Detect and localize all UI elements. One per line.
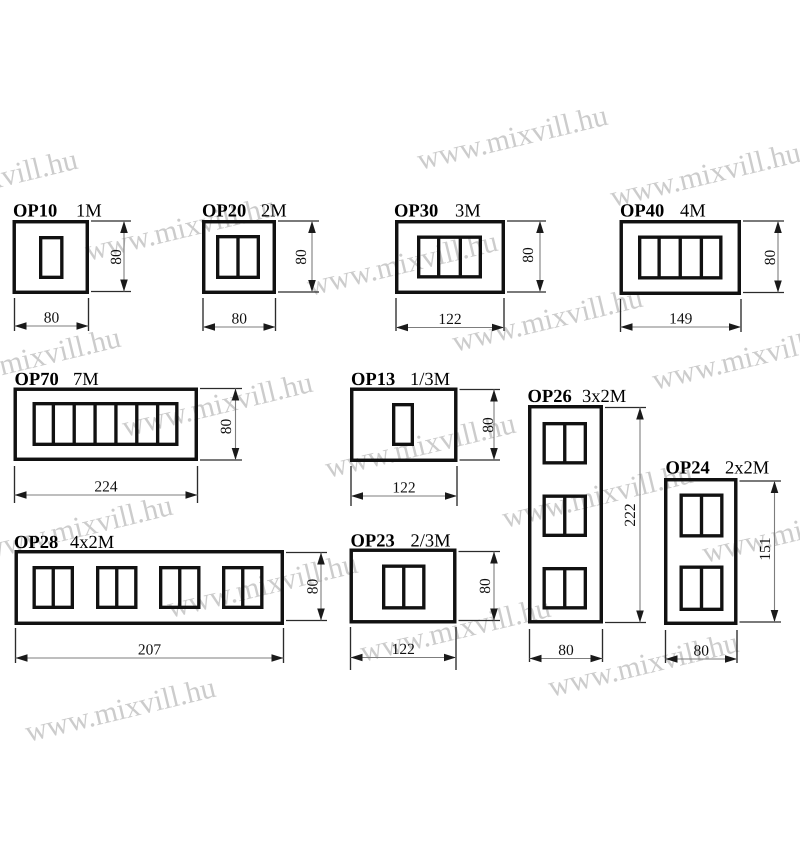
svg-text:OP10: OP10 [13, 202, 57, 222]
svg-text:80: 80 [218, 419, 235, 435]
svg-text:122: 122 [392, 641, 415, 658]
svg-text:OP30: OP30 [394, 202, 438, 222]
svg-text:80: 80 [558, 642, 574, 659]
svg-text:207: 207 [138, 642, 162, 659]
svg-text:3x2M: 3x2M [582, 387, 626, 407]
svg-text:OP70: OP70 [15, 370, 59, 390]
svg-text:80: 80 [108, 249, 125, 265]
svg-text:1M: 1M [76, 202, 102, 222]
svg-text:80: 80 [44, 310, 60, 327]
svg-text:80: 80 [762, 250, 779, 266]
svg-text:4M: 4M [680, 202, 706, 222]
svg-text:149: 149 [669, 311, 693, 328]
svg-text:OP20: OP20 [202, 202, 246, 222]
svg-text:122: 122 [438, 311, 461, 328]
svg-text:OP26: OP26 [528, 387, 572, 407]
svg-text:80: 80 [480, 417, 497, 433]
svg-text:80: 80 [520, 247, 537, 263]
svg-text:80: 80 [232, 311, 248, 328]
svg-text:80: 80 [694, 643, 710, 660]
svg-text:7M: 7M [73, 370, 99, 390]
svg-text:OP40: OP40 [620, 202, 664, 222]
svg-text:224: 224 [94, 479, 118, 496]
svg-text:80: 80 [305, 579, 322, 595]
svg-text:80: 80 [477, 578, 494, 594]
svg-text:222: 222 [622, 503, 639, 526]
svg-text:3M: 3M [455, 202, 481, 222]
svg-text:1/3M: 1/3M [410, 370, 450, 390]
svg-text:2M: 2M [261, 202, 287, 222]
svg-text:2x2M: 2x2M [725, 459, 769, 479]
svg-text:151: 151 [757, 537, 774, 560]
svg-text:80: 80 [293, 249, 310, 265]
svg-text:OP13: OP13 [351, 370, 395, 390]
svg-text:OP24: OP24 [666, 459, 710, 479]
svg-text:122: 122 [392, 480, 415, 497]
